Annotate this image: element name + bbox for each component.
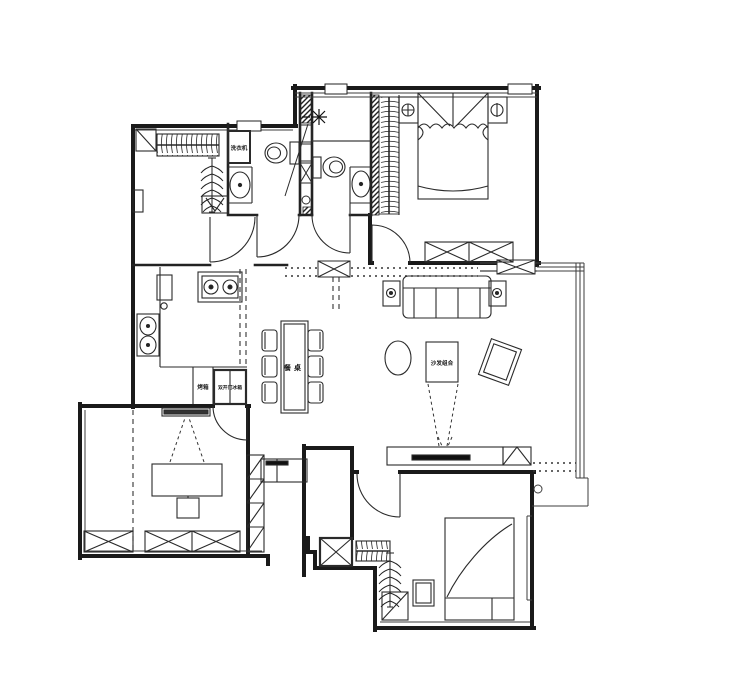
study xyxy=(84,408,264,552)
kitchen-slider-dash xyxy=(240,269,246,366)
kitchen xyxy=(137,267,247,404)
plant-swirl-icon xyxy=(493,289,502,298)
master-wardrobe xyxy=(379,97,399,214)
plant-swirl-icon xyxy=(387,289,396,298)
tv-screen xyxy=(412,455,470,460)
toilet-icon xyxy=(265,143,287,163)
oven-label: 烤箱 xyxy=(197,383,209,391)
floor-drain-icon xyxy=(302,196,310,204)
floor-plan-drawing: 洗衣机 xyxy=(0,0,740,700)
hatched-pier xyxy=(371,95,379,215)
pouf-table xyxy=(385,341,411,375)
blanket-fold xyxy=(447,524,512,597)
sofa-group-label: 沙发组合 xyxy=(431,359,454,367)
toilet-tank xyxy=(313,157,321,178)
floor-plan: 洗衣机 xyxy=(0,0,740,700)
hatched-pier xyxy=(303,207,312,215)
table-lamp-icon xyxy=(491,103,503,117)
closet-door xyxy=(210,217,255,262)
study-door xyxy=(213,406,247,440)
ensuite-bath-door xyxy=(312,215,350,253)
fridge-label: 双开门冰箱 xyxy=(218,384,242,391)
guest-bath-door xyxy=(257,215,299,257)
bedroom2-door xyxy=(357,474,400,517)
master-bedroom xyxy=(399,93,513,262)
blanket-edge xyxy=(418,186,488,191)
doors xyxy=(210,215,410,517)
ensuite-bathroom xyxy=(313,157,371,203)
end-cabinet xyxy=(503,447,531,465)
projection-beam-icon xyxy=(170,418,204,462)
toilet-icon xyxy=(323,157,345,177)
guest-bathroom xyxy=(228,131,299,203)
bedroom2 xyxy=(356,518,514,620)
cloakroom xyxy=(133,129,228,213)
water-heater xyxy=(157,275,172,300)
washing-machine-label: 洗衣机 xyxy=(231,144,248,152)
ceiling-lamp-icon xyxy=(402,104,414,116)
projection-beam-icon xyxy=(428,384,458,446)
desk xyxy=(152,464,222,496)
toilet-tank xyxy=(290,142,299,164)
ac-platform xyxy=(532,478,588,506)
master-bedroom-door xyxy=(372,225,410,263)
tilted-frame xyxy=(478,339,521,386)
living-room xyxy=(383,276,531,465)
ceiling-beam-dashes xyxy=(285,268,576,471)
desk-chair xyxy=(177,498,199,518)
drain-icon xyxy=(534,485,542,493)
sofa xyxy=(403,276,491,318)
hatched-pier xyxy=(300,95,312,123)
single-bed xyxy=(445,518,514,620)
shower-door xyxy=(285,124,308,196)
dining-table-label: 餐桌 xyxy=(283,363,304,372)
